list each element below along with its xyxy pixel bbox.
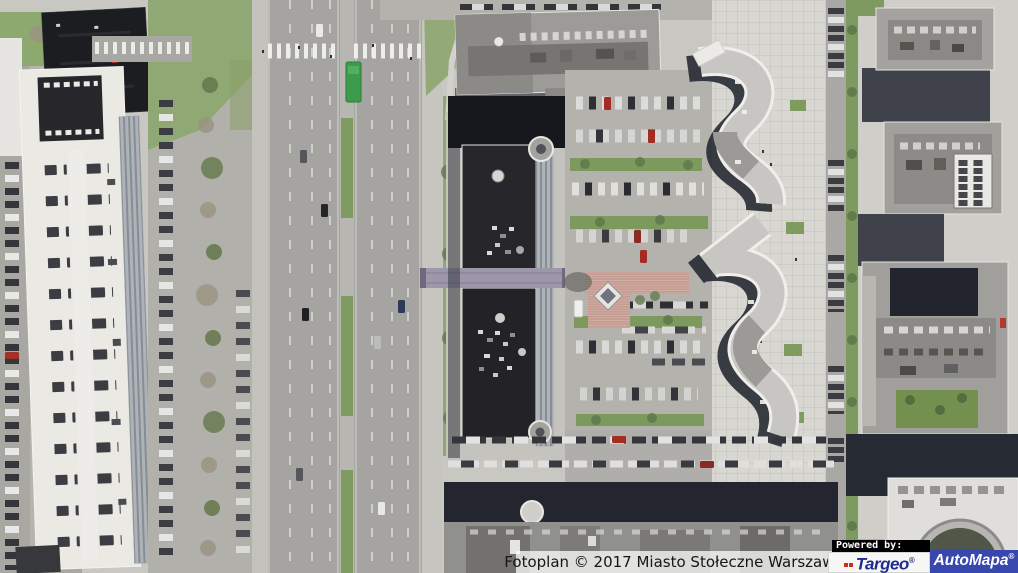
attribution-text: Fotoplan © 2017 Miasto Stołeczne Warszaw… — [504, 553, 843, 571]
white-office-building — [19, 66, 154, 570]
registered-trademark-icon: ® — [909, 556, 914, 565]
skybridge — [420, 268, 570, 288]
map-attribution: Fotoplan © 2017 Miasto Stołeczne Warszaw… — [516, 551, 832, 573]
targeo-accent-icon — [844, 563, 848, 567]
aerial-imagery — [0, 0, 1018, 573]
campus-building-south — [862, 262, 1008, 434]
targeo-logo[interactable]: Targeo® — [828, 552, 930, 573]
map-viewport[interactable]: Fotoplan © 2017 Miasto Stołeczne Warszaw… — [0, 0, 1018, 573]
main-road — [252, 0, 442, 573]
right-campus — [846, 0, 1018, 573]
targeo-accent-icon — [849, 563, 853, 567]
targeo-wordmark: Targeo — [856, 554, 909, 573]
city-bus — [346, 62, 361, 102]
automapa-wordmark: AutoMapa — [934, 553, 1009, 570]
white-van — [574, 300, 583, 317]
roof-vent-circle — [521, 501, 543, 523]
campus-building-north — [876, 8, 994, 70]
campus-building-mid — [884, 122, 1002, 214]
registered-trademark-icon: ® — [1009, 552, 1015, 561]
automapa-logo[interactable]: AutoMapa® — [930, 550, 1018, 573]
